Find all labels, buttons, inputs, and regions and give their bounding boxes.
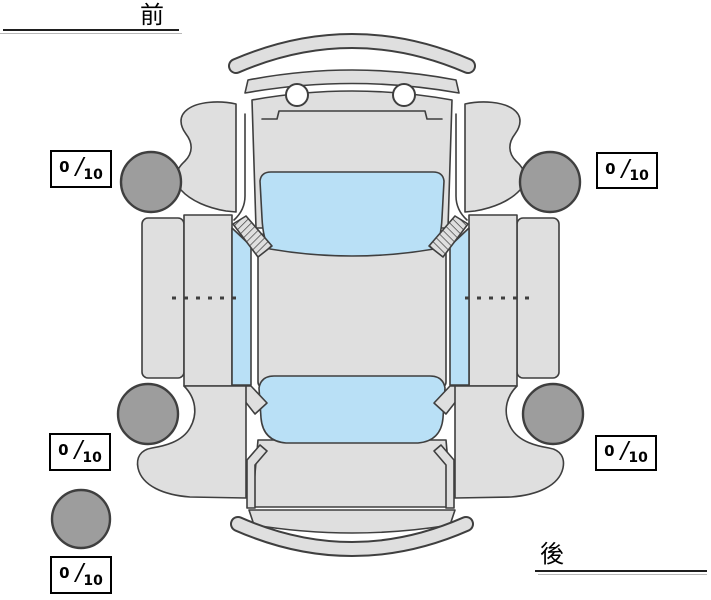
tread-max: 10 [83, 167, 102, 183]
rear-cowl-panel [249, 510, 455, 533]
tread-separator: / [622, 158, 630, 181]
tire-tread-box-front-left: 0 / 10 [50, 150, 112, 188]
tread-value: 0 [604, 442, 614, 460]
tread-separator: / [621, 440, 629, 463]
left-side-window [232, 228, 251, 385]
front-label-underline-shadow [0, 33, 182, 34]
tire-tread-box-rear-right: 0 / 10 [595, 435, 657, 471]
spare-wheel-icon [52, 490, 110, 548]
right-side-panels [429, 102, 583, 508]
tire-tread-box-rear-left: 0 / 10 [49, 433, 111, 471]
tread-value: 0 [59, 158, 69, 176]
front-label-text: 前 [140, 1, 164, 29]
rear-label-text: 後 [540, 540, 564, 568]
tread-max: 10 [83, 573, 102, 589]
rear-label-underline-shadow [538, 574, 707, 575]
tire-tread-box-front-right: 0 / 10 [596, 152, 658, 189]
tire-condition-diagram-canvas: 前 後 0 / 10 0 / 10 0 / 10 0 / 10 0 / 10 [0, 0, 711, 600]
left-side-panels [118, 102, 272, 508]
right-sill-panel [517, 218, 559, 378]
tread-value: 0 [605, 160, 615, 178]
front-label-underline [3, 29, 179, 31]
front-right-fender [465, 102, 525, 212]
left-sill-panel [142, 218, 184, 378]
rear-left-wheel-icon [118, 384, 178, 444]
right-side-window [450, 228, 469, 385]
right-door-panel [469, 215, 517, 386]
tread-separator: / [76, 562, 84, 585]
roof-panel [258, 234, 446, 388]
tread-separator: / [76, 156, 84, 179]
headlight-left-icon [286, 84, 308, 106]
windshield [260, 172, 444, 256]
front-left-fender [176, 102, 236, 212]
rear-label: 後 [540, 541, 564, 567]
front-cowl-panel [245, 70, 459, 93]
rear-window [259, 376, 445, 443]
headlight-right-icon [393, 84, 415, 106]
front-left-wheel-icon [121, 152, 181, 212]
front-bumper [236, 41, 468, 66]
rear-right-wheel-icon [523, 384, 583, 444]
tread-max: 10 [82, 450, 101, 466]
front-right-wheel-icon [520, 152, 580, 212]
front-label: 前 [140, 2, 164, 28]
tread-value: 0 [58, 441, 68, 459]
tread-max: 10 [629, 168, 648, 184]
tread-value: 0 [59, 564, 69, 582]
car-condition-diagram [0, 0, 711, 600]
tire-tread-box-spare: 0 / 10 [50, 556, 112, 594]
tread-separator: / [75, 439, 83, 462]
rear-label-underline [535, 570, 707, 572]
left-door-panel [184, 215, 232, 386]
tread-max: 10 [628, 450, 647, 466]
trunk-panel [252, 440, 452, 507]
